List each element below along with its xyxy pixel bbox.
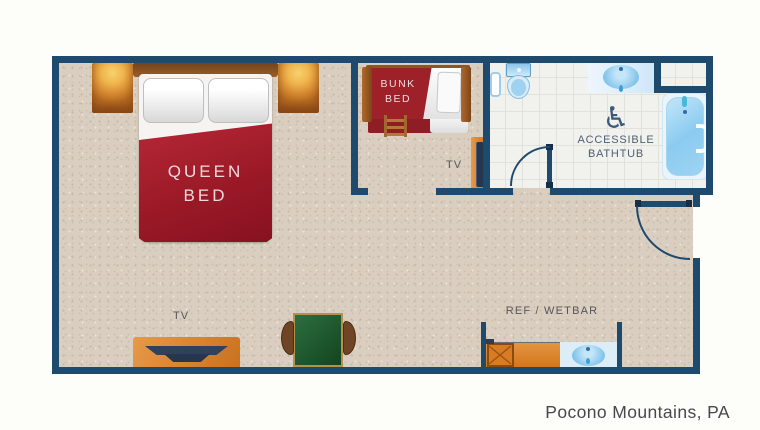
wall-outer-bottom — [52, 367, 700, 374]
entry-door-leaf — [635, 201, 692, 207]
wall-bunkroom-left — [351, 56, 358, 195]
wall-outer-right-upper — [693, 195, 700, 207]
bathtub-drain — [683, 110, 687, 114]
bunk-bed: BUNK BED — [369, 68, 466, 119]
wall-outer-top — [52, 56, 713, 63]
wall-bathroom-bottom-right — [550, 188, 713, 195]
bathroom-sink-faucet — [619, 67, 623, 71]
wall-wetbar-stub-right — [617, 322, 622, 368]
wall-bathroom-right — [706, 56, 713, 195]
bedroom-tv-label: TV — [163, 310, 199, 322]
fridge-corner-detail — [486, 339, 494, 344]
bunk-bed-post-left — [362, 67, 372, 122]
bunk-bed-ladder — [384, 115, 407, 137]
wetbar-sink-drop — [586, 358, 590, 364]
pillow-right — [208, 78, 269, 123]
queen-bed-label-line2: BED — [184, 184, 228, 208]
bunk-bed-post-right — [461, 67, 471, 122]
bunk-bed-label-line2: BED — [369, 92, 427, 107]
queen-bed-label-line1: QUEEN — [168, 160, 243, 184]
wheelchair-icon: ♿ — [598, 100, 634, 136]
wetbar-sink-faucet — [586, 347, 590, 351]
bunk-room-tv-label: TV — [436, 159, 472, 171]
bathroom-door-latch — [546, 144, 553, 150]
nightstand-lamp-right — [278, 63, 319, 113]
tv-screen — [145, 346, 228, 355]
bunk-bed-label-line1: BUNK — [369, 77, 427, 92]
bunk-bed-label: BUNK BED — [369, 77, 427, 107]
location-caption: Pocono Mountains, PA — [545, 402, 730, 423]
nightstand-lamp-left — [92, 63, 133, 113]
floorplan-canvas: QUEEN BED TV REF / WETBAR BUNK BED TV ♿ — [0, 0, 760, 430]
toilet-seat — [511, 79, 526, 96]
table — [293, 313, 343, 367]
fridge — [487, 343, 514, 367]
wall-bunkroom-stub — [351, 188, 368, 195]
bunk-bed-pillow — [436, 72, 462, 114]
wall-bathroom-left — [483, 56, 490, 195]
wetbar-label: REF / WETBAR — [477, 305, 627, 317]
wall-alcove-horizontal — [654, 86, 713, 93]
chair-left — [281, 321, 294, 355]
wall-bathroom-bottom-left — [436, 188, 513, 195]
wall-outer-right-lower — [693, 258, 700, 374]
wall-outer-left — [52, 56, 59, 374]
entry-door-latch — [686, 200, 692, 207]
wall-wetbar-stub-left — [481, 322, 486, 368]
bathtub-faucet — [682, 96, 687, 107]
bathroom-door-hinge — [546, 182, 553, 188]
entry-door-hinge — [635, 200, 641, 207]
pillow-left — [143, 78, 204, 123]
towel-holder — [490, 72, 501, 97]
bathroom-sink-drop — [619, 85, 623, 92]
